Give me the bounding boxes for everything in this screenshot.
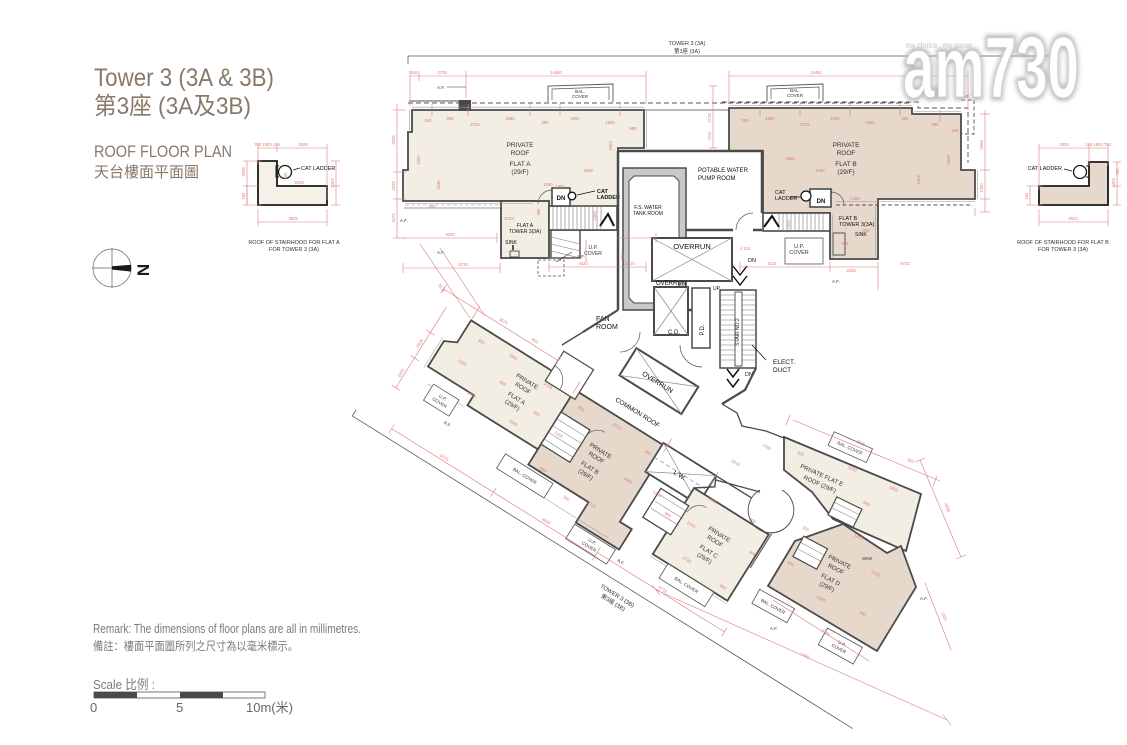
svg-text:2635: 2635 (391, 135, 396, 145)
svg-text:A.F.: A.F. (920, 596, 928, 601)
svg-text:2110: 2110 (707, 131, 712, 141)
svg-text:PUMP ROOM: PUMP ROOM (698, 176, 736, 182)
svg-text:4020: 4020 (578, 261, 588, 266)
svg-text:PRIVATE: PRIVATE (507, 142, 535, 149)
svg-text:989: 989 (630, 126, 638, 131)
svg-text:PRIVATE: PRIVATE (833, 142, 861, 149)
svg-text:2810: 2810 (620, 251, 625, 261)
svg-text:2908: 2908 (241, 167, 246, 177)
svg-text:5733: 5733 (504, 216, 514, 221)
svg-text:A.F.: A.F. (577, 254, 585, 259)
svg-text:1903: 1903 (608, 141, 613, 151)
svg-text:ROOF OF STAIRHOOD FOR FLAT A: ROOF OF STAIRHOOD FOR FLAT A (248, 240, 340, 246)
svg-text:1969: 1969 (555, 184, 565, 189)
svg-text:900: 900 (283, 172, 288, 180)
svg-text:FLAT A: FLAT A (509, 161, 531, 168)
svg-text:FLAT B: FLAT B (835, 161, 856, 168)
svg-text:(29/F): (29/F) (837, 169, 854, 176)
svg-text:SINK: SINK (505, 240, 517, 246)
svg-text:4115: 4115 (767, 261, 777, 266)
svg-text:UP: UP (713, 286, 721, 292)
svg-text:1969: 1969 (785, 156, 795, 161)
svg-text:2810: 2810 (625, 261, 635, 266)
svg-text:700 1903 125: 700 1903 125 (254, 142, 280, 147)
svg-text:10m(米): 10m(米) (246, 700, 293, 715)
svg-text:OVERRUN: OVERRUN (656, 281, 686, 287)
svg-text:2725: 2725 (800, 122, 810, 127)
svg-text:FOR TOWER 3 (3A): FOR TOWER 3 (3A) (269, 247, 319, 253)
svg-text:A.F.: A.F. (437, 85, 445, 90)
svg-text:備註：樓面平面圖所列之尺寸為以毫米標示。: 備註：樓面平面圖所列之尺寸為以毫米標示。 (93, 639, 298, 653)
svg-text:300: 300 (742, 118, 750, 123)
svg-text:天台樓面平面圖: 天台樓面平面圖 (94, 164, 199, 181)
svg-text:2908: 2908 (946, 155, 951, 165)
svg-text:1865: 1865 (865, 120, 875, 125)
svg-text:1303: 1303 (1111, 178, 1116, 188)
svg-text:DN: DN (748, 258, 756, 264)
svg-text:COVER: COVER (787, 93, 804, 98)
svg-text:1459: 1459 (850, 196, 860, 201)
svg-text:3475: 3475 (391, 213, 396, 223)
svg-text:ROOM: ROOM (596, 324, 618, 331)
svg-text:CAT LADDER: CAT LADDER (1028, 166, 1062, 172)
svg-text:1459: 1459 (592, 211, 597, 221)
svg-text:5: 5 (176, 700, 183, 715)
svg-text:OVERRUN: OVERRUN (673, 242, 711, 251)
svg-text:700: 700 (1115, 168, 1120, 176)
svg-text:TOWER 3(3A): TOWER 3(3A) (509, 229, 541, 235)
svg-text:C.D.: C.D. (668, 330, 680, 336)
svg-text:1903: 1903 (916, 175, 921, 185)
svg-text:CAT LADDER: CAT LADDER (301, 166, 335, 172)
svg-text:2715: 2715 (707, 113, 712, 123)
svg-text:Tower 3 (3A & 3B): Tower 3 (3A & 3B) (94, 64, 274, 92)
svg-text:1303: 1303 (330, 178, 335, 188)
svg-text:2725: 2725 (437, 70, 447, 75)
svg-text:1050: 1050 (570, 116, 580, 121)
svg-text:150: 150 (241, 192, 246, 200)
svg-text:LADDER: LADDER (597, 195, 620, 201)
svg-text:459: 459 (863, 228, 871, 233)
svg-text:150: 150 (952, 128, 960, 133)
svg-text:300: 300 (902, 116, 910, 121)
svg-text:my choice . my paper: my choice . my paper (906, 40, 972, 50)
svg-text:1050: 1050 (543, 182, 553, 187)
svg-text:1459: 1459 (786, 220, 791, 230)
svg-text:2725: 2725 (470, 122, 480, 127)
svg-text:989: 989 (932, 122, 940, 127)
svg-text:150: 150 (425, 118, 433, 123)
svg-text:5733: 5733 (900, 261, 910, 266)
svg-text:0: 0 (90, 700, 97, 715)
svg-text:1050: 1050 (815, 168, 825, 173)
svg-text:2908: 2908 (979, 140, 984, 150)
svg-text:FOR TOWER 3 (3A): FOR TOWER 3 (3A) (1038, 247, 1088, 253)
svg-text:P.D.: P.D. (700, 324, 706, 335)
svg-text:am730: am730 (903, 20, 1079, 116)
svg-text:2635: 2635 (436, 180, 441, 190)
svg-text:1865: 1865 (605, 120, 615, 125)
svg-text:N: N (134, 264, 153, 276)
svg-text:DN: DN (817, 199, 826, 205)
svg-text:STAIR NO.2: STAIR NO.2 (735, 318, 741, 346)
svg-text:150: 150 (1024, 192, 1029, 200)
svg-text:ROOF: ROOF (837, 150, 856, 157)
svg-text:4023: 4023 (1068, 216, 1078, 221)
svg-text:DN: DN (557, 196, 566, 202)
svg-text:6020: 6020 (445, 232, 455, 237)
svg-text:2828: 2828 (298, 142, 308, 147)
svg-text:TOWER 3 (3A): TOWER 3 (3A) (669, 41, 706, 47)
svg-text:第3座 (3A及3B): 第3座 (3A及3B) (94, 93, 251, 120)
svg-text:A.F.: A.F. (770, 626, 778, 631)
svg-text:4 115: 4 115 (740, 246, 751, 251)
svg-text:300: 300 (429, 204, 437, 209)
svg-text:Remark: The dimensions of floo: Remark: The dimensions of floor plans ar… (93, 622, 361, 636)
svg-text:2025: 2025 (846, 268, 856, 273)
svg-text:A.F.: A.F. (437, 250, 445, 255)
svg-text:2828: 2828 (294, 180, 304, 185)
svg-text:1350: 1350 (979, 183, 984, 193)
svg-text:COVER: COVER (584, 251, 602, 257)
svg-text:Scale 比例 :: Scale 比例 : (93, 677, 155, 692)
svg-text:906: 906 (447, 116, 455, 121)
svg-text:1969: 1969 (583, 168, 593, 173)
svg-text:ELECT.: ELECT. (773, 359, 795, 366)
svg-text:1000: 1000 (416, 155, 421, 165)
svg-text:1865: 1865 (765, 116, 775, 121)
svg-text:DUCT: DUCT (773, 367, 791, 374)
svg-text:ROOF FLOOR PLAN: ROOF FLOOR PLAN (94, 143, 232, 161)
svg-text:300: 300 (542, 120, 550, 125)
svg-text:POTABLE WATER: POTABLE WATER (698, 168, 749, 174)
svg-text:5733: 5733 (458, 262, 468, 267)
svg-text:SINK: SINK (862, 556, 873, 561)
svg-text:986: 986 (536, 208, 541, 216)
svg-text:TANK ROOM: TANK ROOM (633, 211, 663, 217)
svg-text:ROOF OF STAIRHOOD FOR FLAT B: ROOF OF STAIRHOOD FOR FLAT B (1017, 240, 1109, 246)
svg-text:COVER: COVER (572, 94, 589, 99)
svg-text:COVER: COVER (789, 250, 809, 256)
svg-text:1865: 1865 (505, 116, 515, 121)
svg-text:14460: 14460 (550, 70, 562, 75)
svg-text:A.F.: A.F. (400, 218, 408, 223)
svg-text:986: 986 (842, 241, 850, 246)
svg-text:(29/F): (29/F) (511, 169, 528, 176)
svg-text:125 1903 700: 125 1903 700 (1085, 142, 1111, 147)
svg-text:1828: 1828 (391, 181, 396, 191)
svg-text:3925: 3925 (288, 216, 298, 221)
svg-text:ROOF: ROOF (511, 150, 530, 157)
svg-text:918: 918 (411, 70, 419, 75)
svg-text:2828: 2828 (1059, 142, 1069, 147)
svg-text:第3座 (3A): 第3座 (3A) (674, 47, 700, 55)
svg-text:A.F.: A.F. (832, 279, 840, 284)
svg-text:1050: 1050 (830, 116, 840, 121)
svg-text:14460: 14460 (810, 70, 822, 75)
